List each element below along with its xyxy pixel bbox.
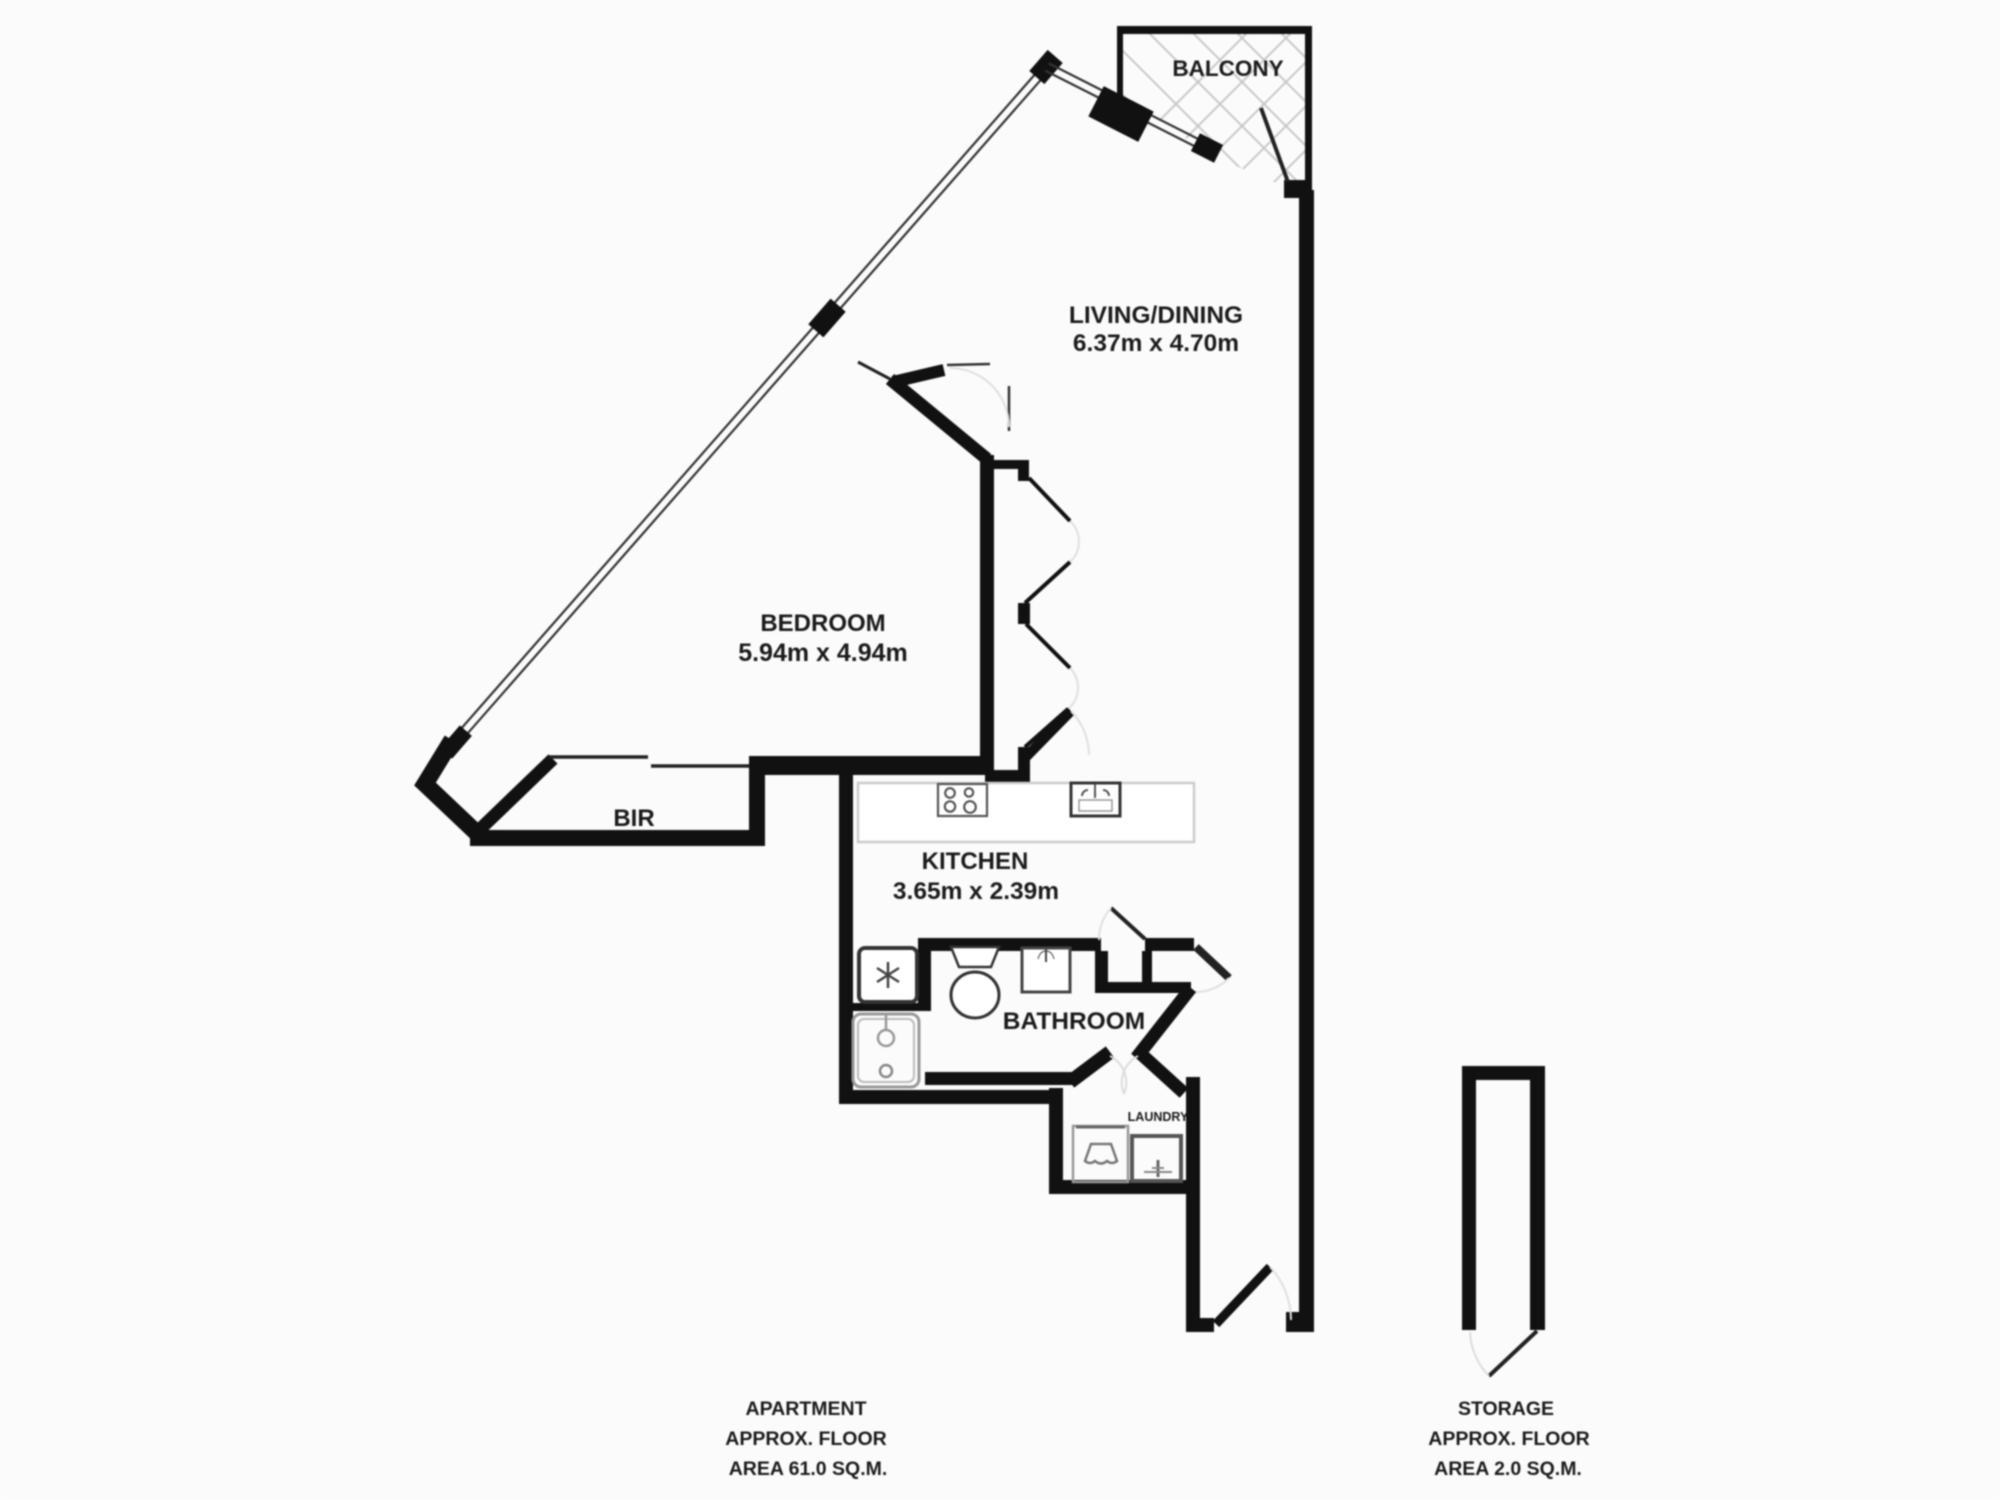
svg-text:AREA 2.0 SQ.M.: AREA 2.0 SQ.M. [1434,1458,1582,1480]
svg-text:LAUNDRY: LAUNDRY [1128,1110,1189,1124]
svg-text:5.94m x 4.94m: 5.94m x 4.94m [738,639,908,667]
svg-text:BEDROOM: BEDROOM [760,610,885,637]
svg-text:STORAGE: STORAGE [1458,1398,1554,1420]
svg-text:KITCHEN: KITCHEN [922,848,1029,875]
svg-text:APPROX. FLOOR: APPROX. FLOOR [1428,1428,1589,1450]
svg-text:APARTMENT: APARTMENT [746,1398,867,1420]
svg-text:APPROX. FLOOR: APPROX. FLOOR [725,1428,886,1450]
svg-text:BATHROOM: BATHROOM [1003,1008,1145,1035]
svg-text:3.65m x 2.39m: 3.65m x 2.39m [893,878,1059,905]
svg-text:6.37m x 4.70m: 6.37m x 4.70m [1073,330,1239,357]
svg-text:BIR: BIR [613,805,654,832]
svg-text:BALCONY: BALCONY [1172,56,1283,81]
svg-text:LIVING/DINING: LIVING/DINING [1069,302,1243,329]
svg-text:AREA 61.0 SQ.M.: AREA 61.0 SQ.M. [729,1458,888,1480]
